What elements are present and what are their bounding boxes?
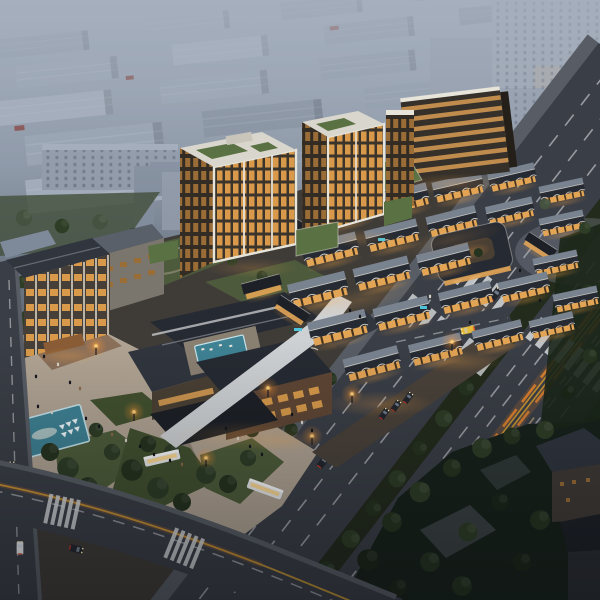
- office-base-glow: [400, 173, 510, 195]
- tower-a-base-glow: [204, 258, 300, 278]
- person: [359, 315, 361, 319]
- aerial-rendering: [0, 0, 600, 600]
- person: [349, 309, 351, 313]
- tower-a-left-face: [180, 148, 214, 278]
- tower-c: [386, 110, 414, 206]
- person: [519, 269, 521, 273]
- tower-c-facade: [386, 114, 414, 206]
- tree: [92, 214, 107, 229]
- person: [429, 295, 431, 299]
- person: [539, 299, 541, 303]
- tower-c-roof: [386, 110, 414, 115]
- tree: [579, 222, 591, 234]
- tree: [540, 199, 551, 210]
- aerial-rendering-canvas: [0, 0, 600, 600]
- tower-a-front-face: [214, 150, 296, 262]
- dusk-vignette: [0, 340, 600, 600]
- tree: [55, 219, 69, 233]
- person: [469, 321, 471, 325]
- tree: [16, 210, 32, 226]
- terrace-office-building: [400, 85, 518, 184]
